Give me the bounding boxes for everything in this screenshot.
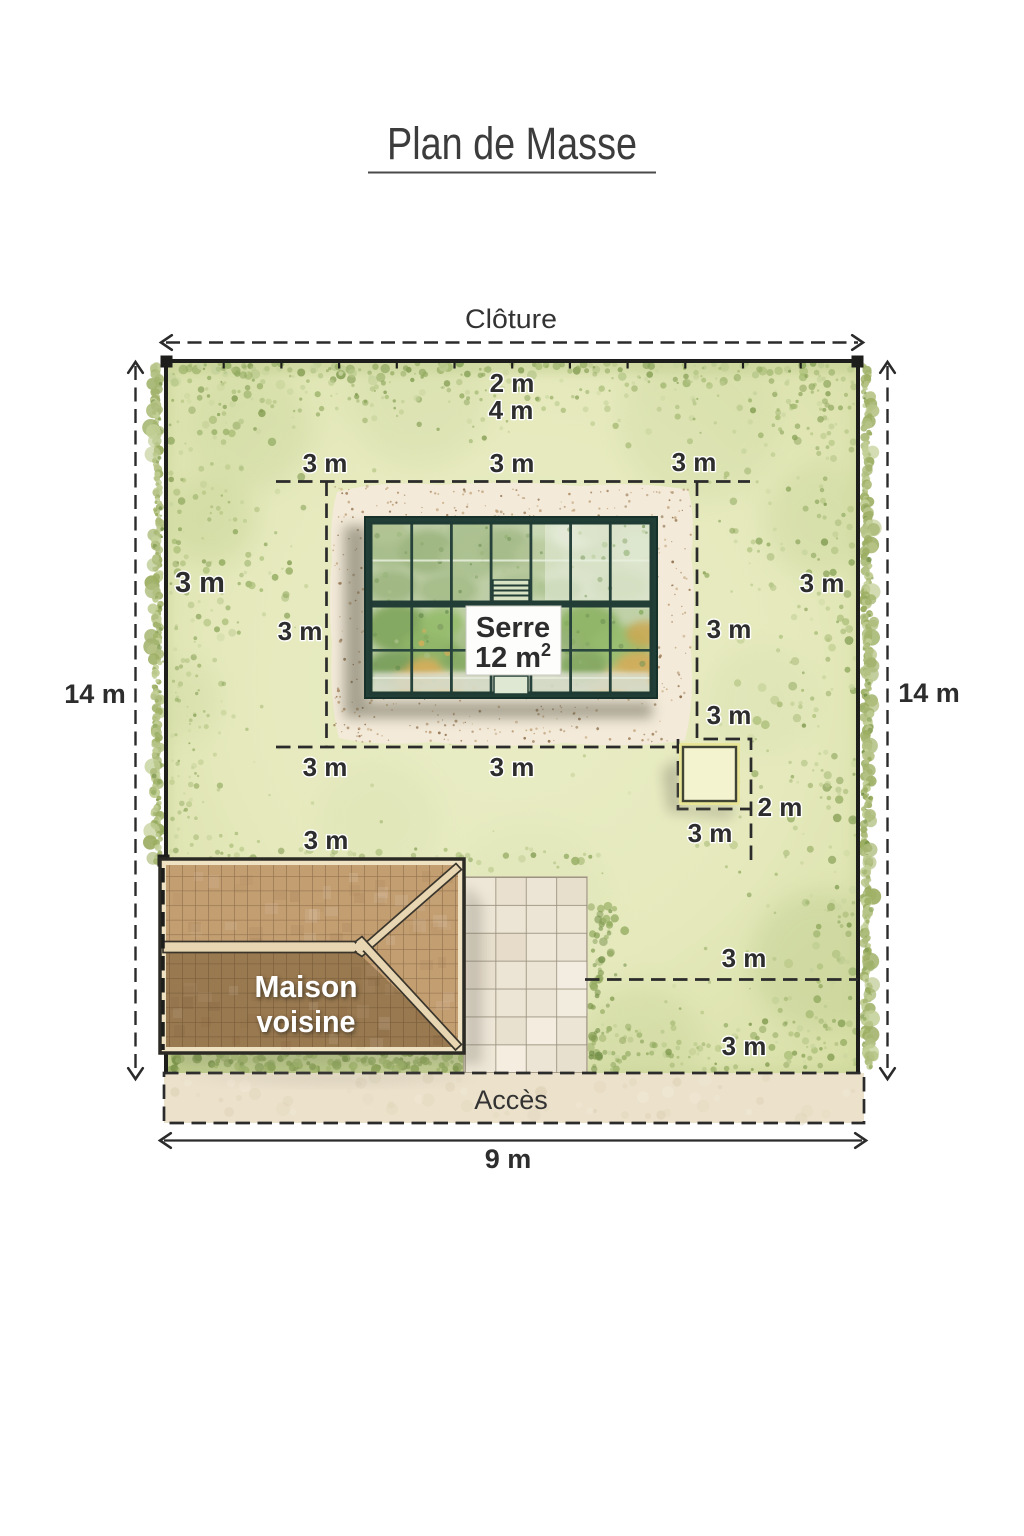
svg-text:3 m: 3 m [490, 448, 535, 478]
svg-text:3 m: 3 m [175, 567, 225, 599]
svg-text:9 m: 9 m [485, 1144, 532, 1174]
svg-text:Maison: Maison [255, 969, 358, 1004]
svg-text:3 m: 3 m [278, 616, 323, 646]
svg-text:3 m: 3 m [707, 700, 752, 730]
svg-text:3 m: 3 m [722, 943, 767, 973]
svg-text:3 m: 3 m [490, 752, 535, 782]
svg-text:3 m: 3 m [303, 448, 348, 478]
svg-text:4 m: 4 m [489, 395, 534, 425]
svg-text:3 m: 3 m [304, 825, 349, 855]
svg-text:Plan de Masse: Plan de Masse [387, 118, 637, 169]
svg-text:14 m: 14 m [64, 679, 126, 709]
svg-text:3 m: 3 m [722, 1031, 767, 1061]
svg-text:3 m: 3 m [688, 818, 733, 848]
svg-text:Clôture: Clôture [465, 304, 557, 334]
svg-text:3 m: 3 m [707, 614, 752, 644]
svg-text:2 m: 2 m [758, 792, 803, 822]
svg-text:3 m: 3 m [800, 568, 845, 598]
svg-text:voisine: voisine [257, 1004, 356, 1039]
svg-text:Accès: Accès [474, 1085, 548, 1115]
svg-text:Serre: Serre [476, 612, 550, 644]
svg-text:12 m2: 12 m2 [475, 640, 551, 674]
svg-text:3 m: 3 m [303, 752, 348, 782]
svg-text:14 m: 14 m [898, 678, 960, 708]
svg-text:3 m: 3 m [672, 447, 717, 477]
svg-text:2 m: 2 m [490, 368, 535, 398]
